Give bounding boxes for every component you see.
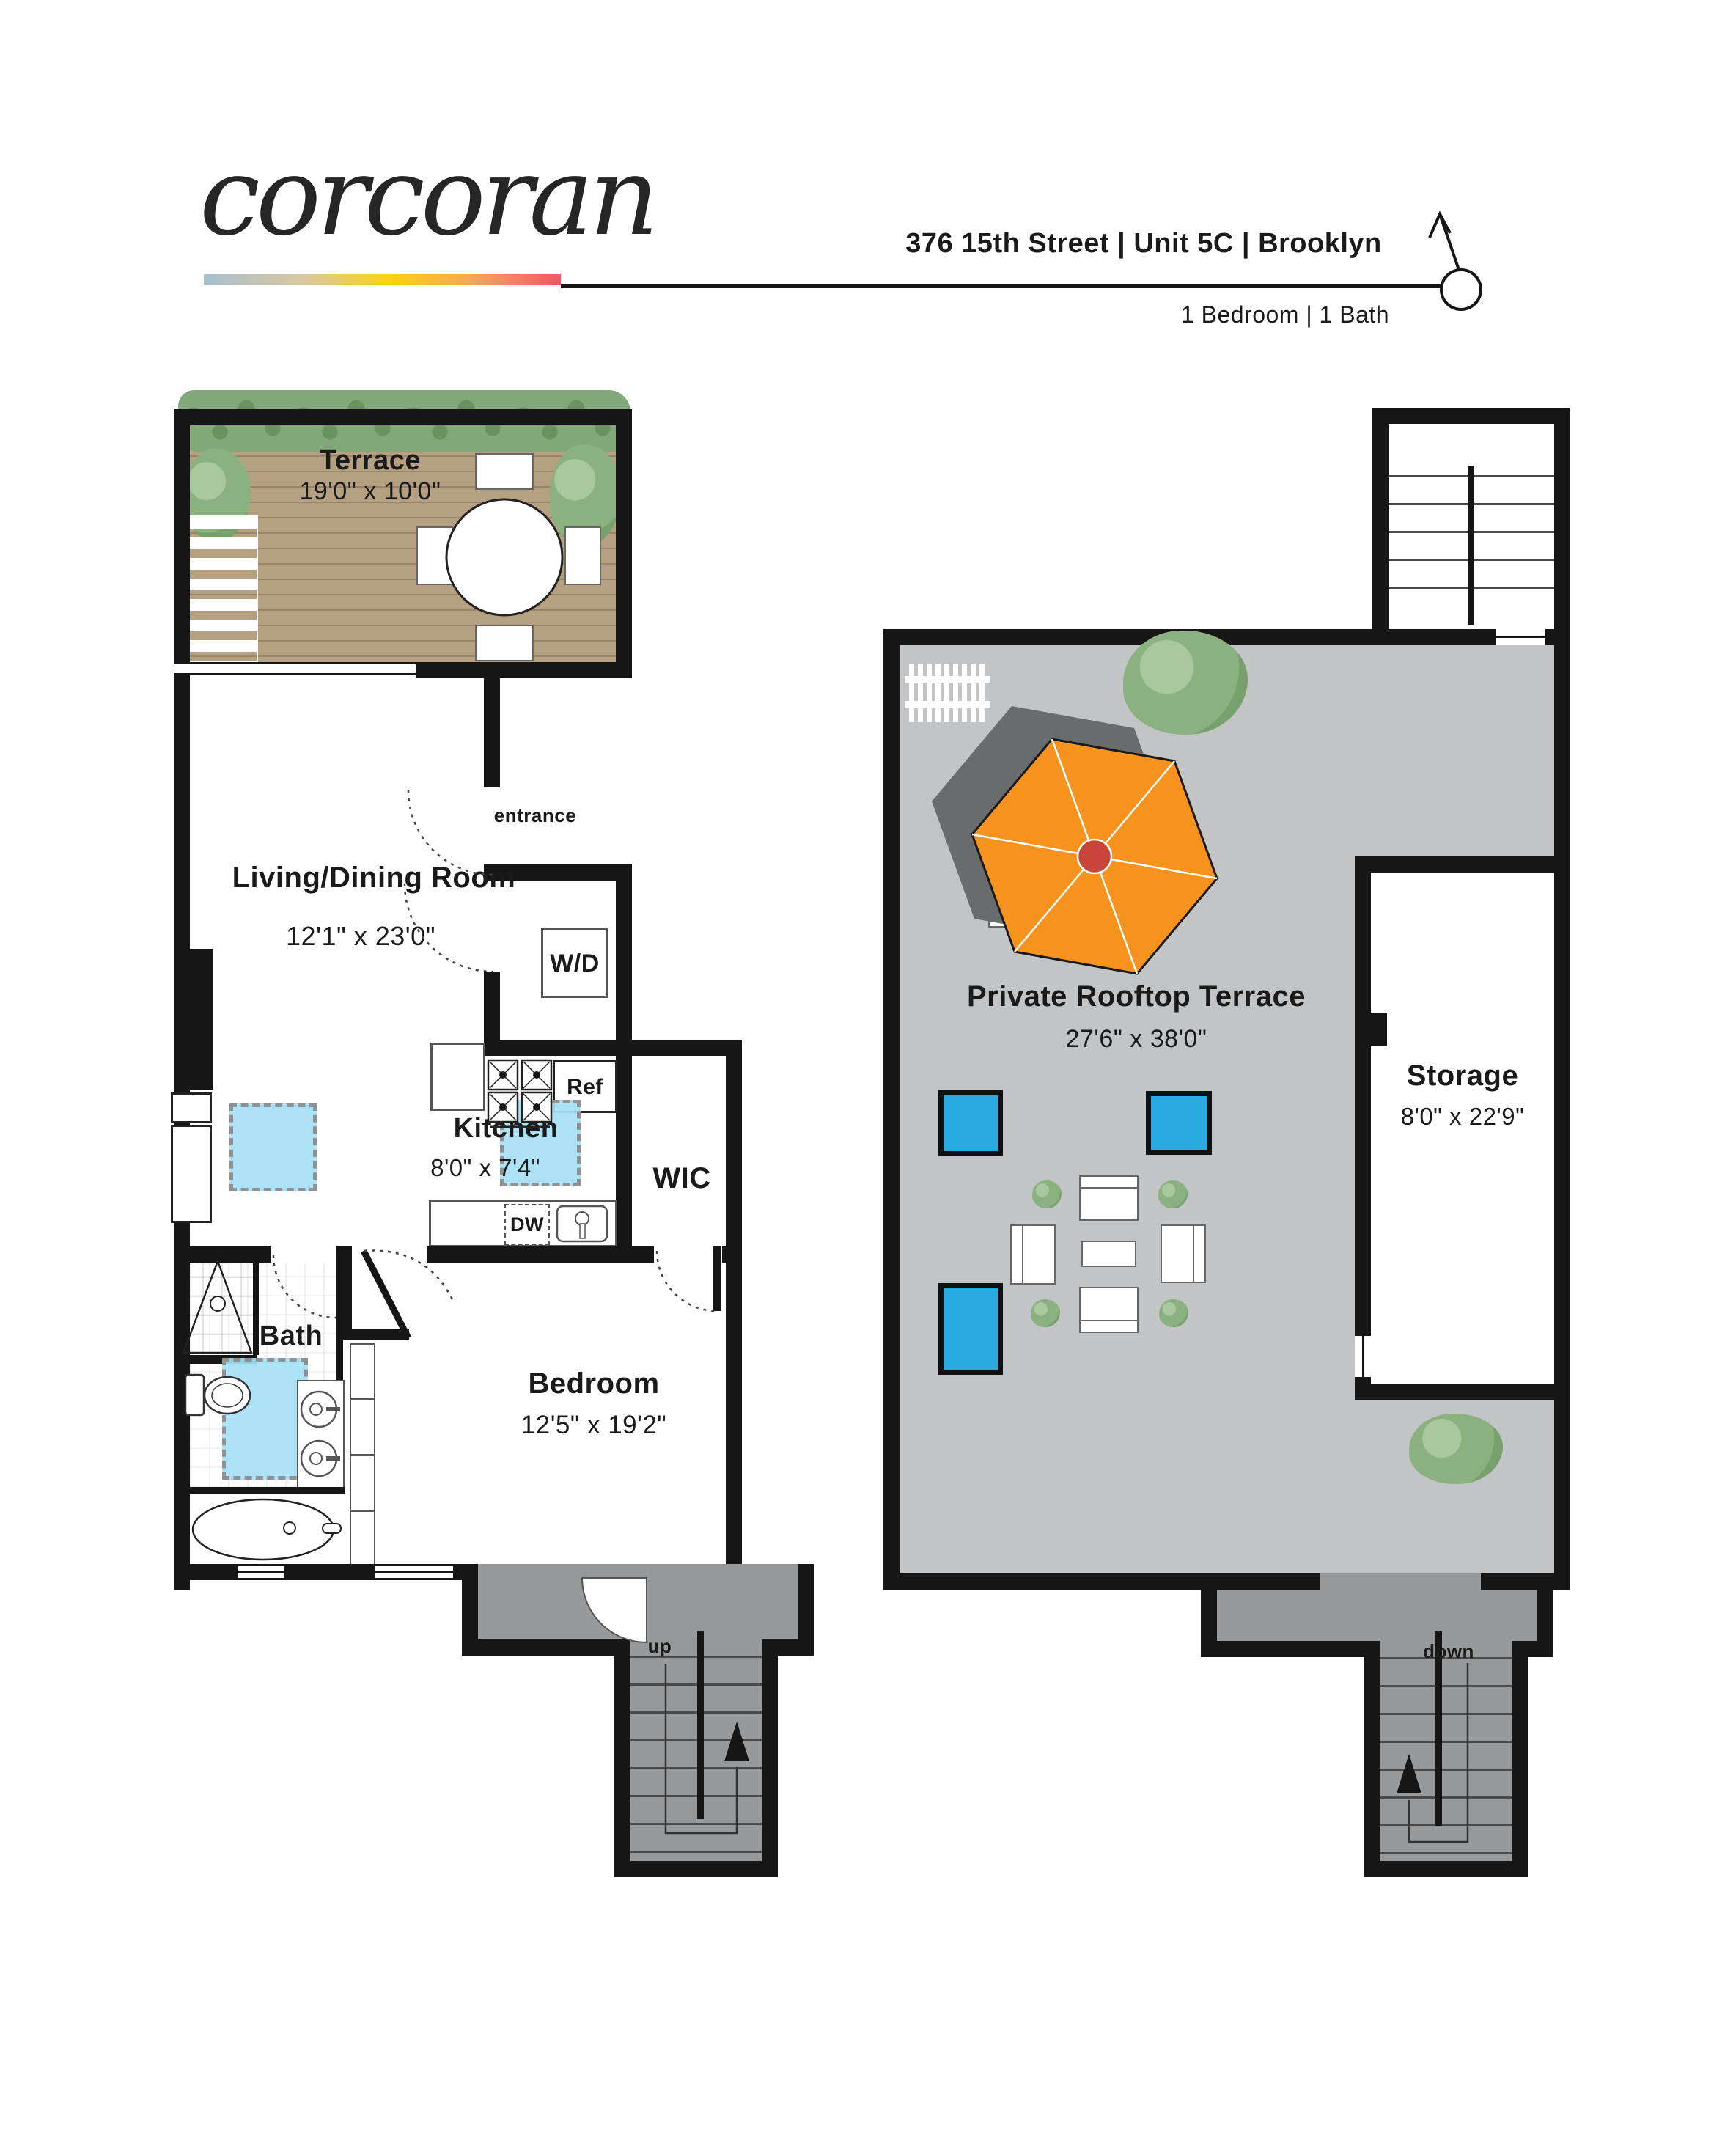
- wall: [1553, 1573, 1570, 1590]
- kitchen-dims: 8'0" x 7'4": [375, 1155, 595, 1181]
- rooftop-terrace-dims: 27'6" x 38'0": [953, 1026, 1320, 1053]
- header-rule: [561, 284, 1441, 288]
- wall: [174, 409, 632, 425]
- bedroom-dims: 12'5" x 19'2": [447, 1411, 740, 1439]
- unit-summary: 1 Bedroom | 1 Bath: [1139, 302, 1432, 328]
- wall: [484, 1040, 632, 1056]
- wall: [174, 1564, 238, 1580]
- wall: [1355, 1384, 1570, 1400]
- wall: [726, 1040, 742, 1590]
- rooftop-sofa-bottom: [1079, 1287, 1139, 1333]
- bath-skylight-highlight: [222, 1358, 308, 1480]
- wall: [614, 1639, 630, 1877]
- brand-gradient-bar: [204, 274, 561, 285]
- railing-icon: [909, 664, 986, 722]
- bedroom-door-leaf: [364, 1251, 408, 1338]
- wall-notch: [1355, 1013, 1387, 1046]
- wall: [883, 629, 1372, 645]
- wall: [462, 1639, 630, 1656]
- wall: [722, 1246, 742, 1263]
- rooftop-chair: [1036, 757, 1077, 792]
- terrace-dims: 19'0" x 10'0": [242, 478, 499, 505]
- bedroom-closet-doors: [350, 1343, 375, 1565]
- rooftop-dining-table: [979, 796, 1078, 891]
- stair-up-label: up: [623, 1636, 696, 1656]
- wall: [1201, 1573, 1320, 1590]
- rooftop-sofa-right: [1161, 1224, 1206, 1283]
- wall: [427, 1246, 654, 1263]
- bedroom-label: Bedroom: [447, 1368, 740, 1400]
- wall: [616, 1040, 632, 1263]
- floorplan-page: corcoran 376 15th Street | Unit 5C | Bro…: [0, 0, 1736, 2141]
- planter-bush: [1031, 1299, 1060, 1327]
- wall: [1512, 1641, 1528, 1877]
- railing-bar-top: [905, 676, 990, 683]
- wall: [883, 629, 900, 1590]
- bedroom-window: [375, 1564, 453, 1580]
- dishwasher-box: DW: [504, 1204, 550, 1245]
- planter-bush: [1032, 1180, 1062, 1208]
- wall: [616, 409, 632, 678]
- wic-label: WIC: [627, 1163, 737, 1194]
- bath-vanity: [297, 1380, 345, 1488]
- skylight: [1146, 1091, 1212, 1155]
- wall: [1372, 408, 1389, 645]
- washer-dryer-label: W/D: [543, 950, 606, 977]
- wall: [1364, 1641, 1380, 1877]
- refrigerator-label: Ref: [555, 1076, 615, 1099]
- wall: [1355, 856, 1371, 1336]
- wall: [1372, 629, 1496, 645]
- stair-steps-2: [1380, 1657, 1512, 1861]
- skylight: [938, 1283, 1003, 1375]
- skylight: [938, 1090, 1003, 1156]
- wall: [614, 1861, 778, 1877]
- wall: [778, 1639, 814, 1656]
- storage-dims: 8'0" x 22'9": [1334, 1103, 1591, 1130]
- wall: [1364, 1861, 1528, 1877]
- wall-niche-small: [171, 1092, 212, 1123]
- wic-door-leaf: [713, 1246, 721, 1311]
- rooftop-bush-small: [1409, 1414, 1503, 1484]
- wall: [762, 1639, 778, 1877]
- terrace-label: Terrace: [260, 446, 480, 476]
- rooftop-bush-large: [1123, 631, 1248, 735]
- wall: [484, 662, 500, 787]
- rooftop-sofa-top: [1079, 1175, 1139, 1221]
- dishwasher-label: DW: [506, 1214, 548, 1235]
- wic-door-arc: [657, 1251, 717, 1311]
- compass-n-label: N: [1439, 277, 1483, 301]
- storage-door-opening: [1355, 1336, 1371, 1377]
- kitchen-label: Kitchen: [411, 1114, 601, 1144]
- wall: [284, 1564, 375, 1580]
- stairwell-door-opening: [1496, 629, 1545, 645]
- rooftop-terrace-label: Private Rooftop Terrace: [916, 981, 1356, 1013]
- wall: [1554, 408, 1570, 645]
- terrace-chair-bottom: [475, 625, 534, 661]
- planter-bush: [1159, 1299, 1188, 1327]
- wall: [416, 662, 632, 678]
- planter-bush: [1158, 1180, 1188, 1208]
- structural-column: [174, 949, 213, 1090]
- living-room-dims: 12'1" x 23'0": [214, 922, 507, 951]
- rooftop-chair: [988, 758, 1031, 793]
- kitchen-counter-peninsula: [430, 1043, 485, 1111]
- washer-dryer-box: W/D: [541, 928, 608, 998]
- storage-label: Storage: [1353, 1060, 1573, 1092]
- stairwell-runner: [1468, 466, 1474, 625]
- stair-down-label: down: [1375, 1641, 1522, 1661]
- wall: [883, 1573, 1201, 1590]
- wall: [336, 1329, 409, 1340]
- address-title: 376 15th Street | Unit 5C | Brooklyn: [850, 229, 1437, 259]
- wall-niche-large: [171, 1125, 212, 1223]
- wall: [1201, 1641, 1380, 1657]
- rooftop-coffee-table: [1081, 1241, 1136, 1267]
- wall: [1355, 856, 1570, 873]
- entrance-label: entrance: [462, 805, 608, 826]
- rooftop-chair: [988, 892, 1031, 928]
- brand-logo: corcoran: [199, 133, 655, 260]
- rooftop-sofa-left: [1010, 1224, 1056, 1285]
- wall: [1481, 1573, 1553, 1590]
- terrace-chair-right: [564, 526, 601, 585]
- wall: [336, 1246, 352, 1331]
- railing-bar-bottom: [905, 701, 990, 708]
- bath-label: Bath: [240, 1321, 342, 1351]
- terrace-chair-left: [416, 526, 453, 585]
- stair-runner-1: [697, 1631, 704, 1819]
- rooftop-chair: [1034, 890, 1075, 925]
- living-room-label: Living/Dining Room: [191, 862, 557, 894]
- wall: [616, 1040, 742, 1056]
- bathtub-icon: [193, 1499, 341, 1560]
- wall: [616, 864, 632, 1056]
- stair-steps-1: [630, 1656, 762, 1861]
- living-skylight-highlight: [229, 1103, 317, 1191]
- bath-window: [238, 1564, 284, 1580]
- wall: [174, 1487, 345, 1494]
- lounge-chair: [189, 517, 257, 664]
- terrace-sliding-door: [174, 662, 416, 675]
- wall: [1372, 408, 1570, 424]
